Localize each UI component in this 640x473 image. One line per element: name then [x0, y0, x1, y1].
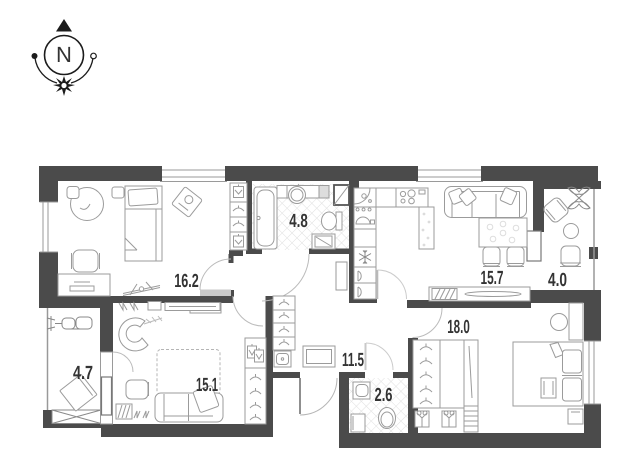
svg-text:N: N	[56, 42, 72, 67]
svg-text:4.7: 4.7	[73, 363, 93, 384]
svg-text:4.8: 4.8	[289, 211, 308, 232]
svg-text:4.0: 4.0	[548, 270, 567, 291]
svg-text:2.6: 2.6	[374, 385, 392, 406]
svg-text:11.5: 11.5	[342, 350, 364, 371]
svg-text:15.7: 15.7	[480, 268, 503, 289]
svg-text:15.1: 15.1	[196, 375, 218, 396]
svg-text:16.2: 16.2	[174, 271, 199, 292]
svg-text:18.0: 18.0	[447, 317, 470, 338]
